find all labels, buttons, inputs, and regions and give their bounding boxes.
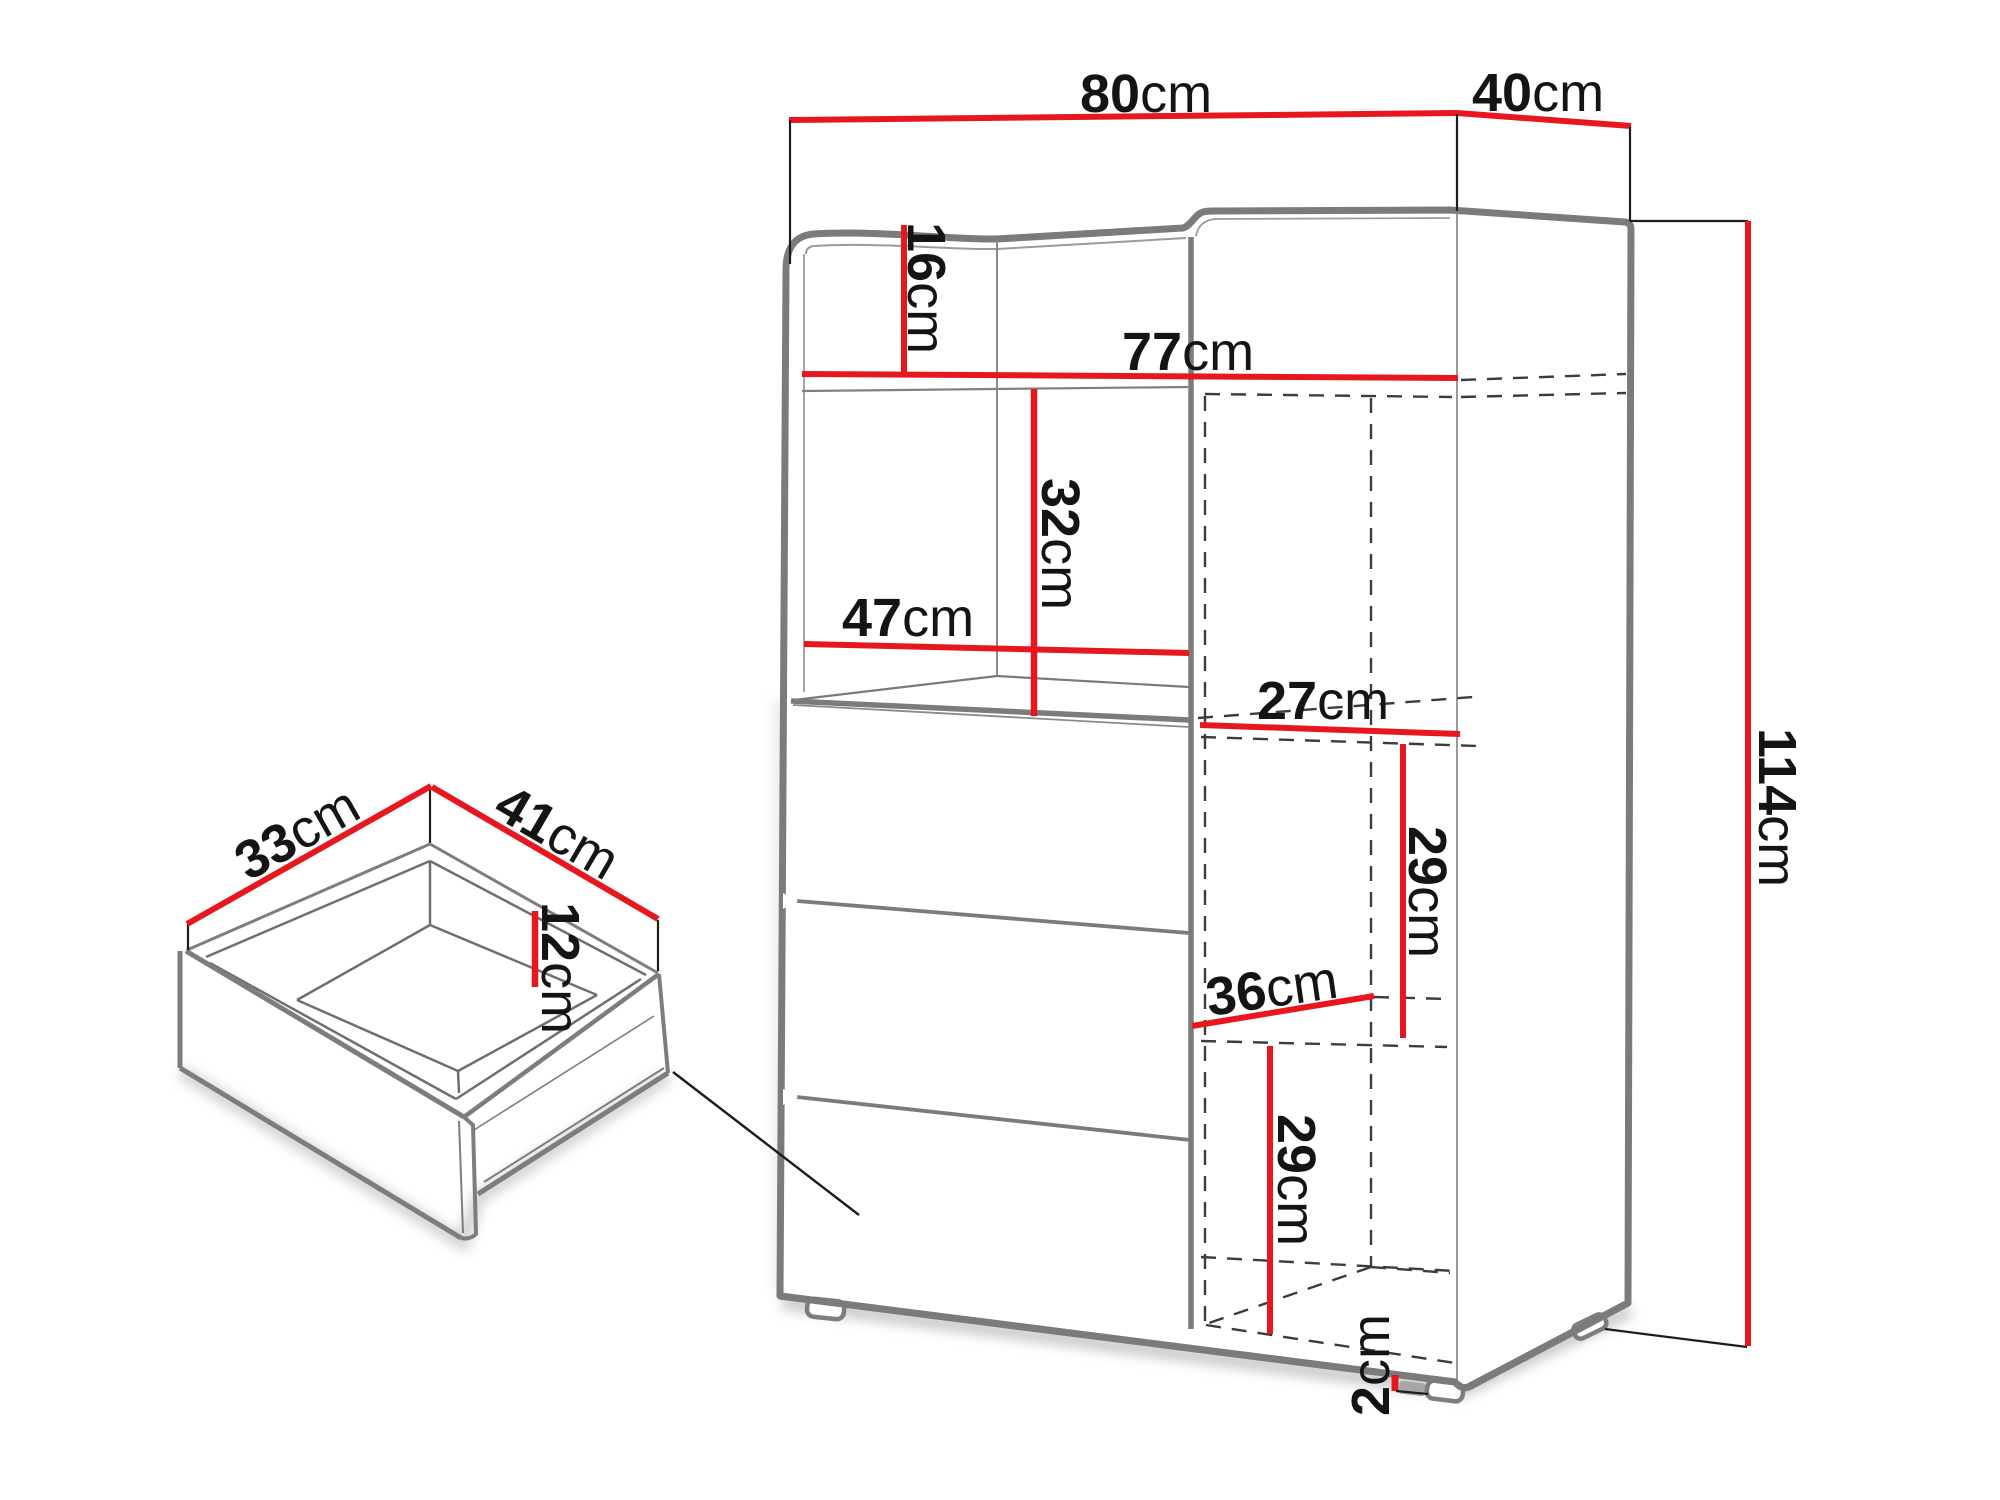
svg-text:12cm: 12cm	[530, 902, 590, 1034]
svg-text:29cm: 29cm	[1266, 1114, 1326, 1246]
svg-text:27cm: 27cm	[1257, 671, 1389, 731]
svg-text:40cm: 40cm	[1472, 63, 1604, 123]
svg-text:80cm: 80cm	[1080, 64, 1212, 124]
svg-text:77cm: 77cm	[1122, 322, 1254, 382]
svg-text:47cm: 47cm	[842, 588, 974, 648]
svg-text:16cm: 16cm	[896, 222, 956, 354]
svg-text:114cm: 114cm	[1747, 728, 1807, 887]
svg-text:2cm: 2cm	[1341, 1314, 1401, 1416]
svg-text:32cm: 32cm	[1030, 478, 1090, 610]
svg-text:29cm: 29cm	[1397, 826, 1457, 958]
